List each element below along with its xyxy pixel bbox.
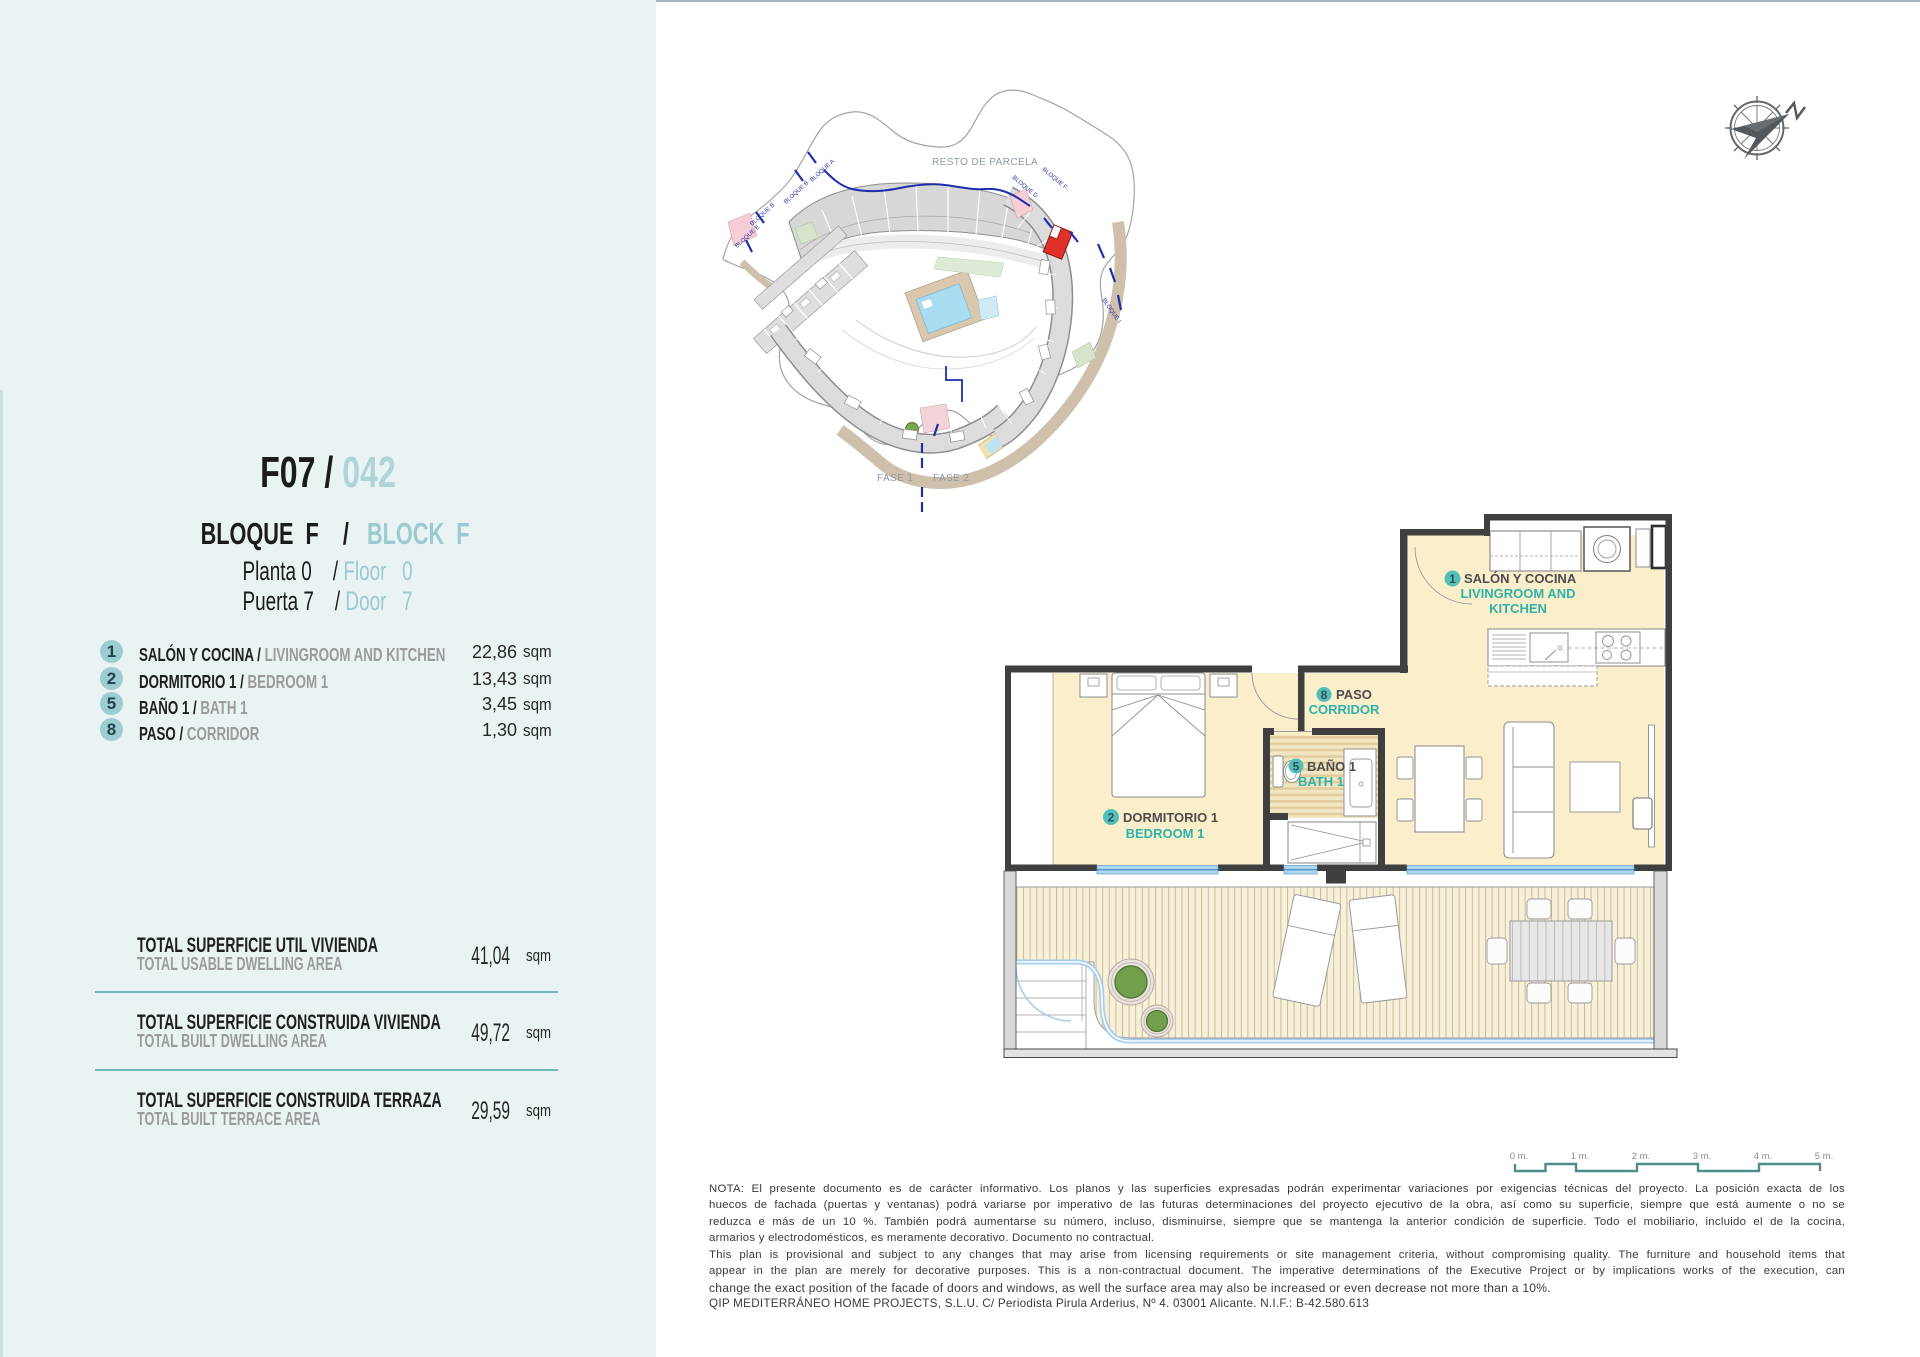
svg-text:RESTO DE PARCELA: RESTO DE PARCELA (932, 157, 1038, 168)
svg-text:DORMITORIO 1: DORMITORIO 1 (1123, 810, 1218, 825)
svg-text:SALÓN Y COCINA: SALÓN Y COCINA (1464, 571, 1577, 586)
svg-text:LIVINGROOM AND: LIVINGROOM AND (1460, 586, 1575, 601)
svg-text:FASE 1: FASE 1 (877, 473, 913, 484)
svg-text:PASO: PASO (1336, 687, 1372, 702)
svg-text:8: 8 (1321, 688, 1328, 702)
svg-text:2: 2 (1108, 811, 1115, 825)
svg-text:5: 5 (1293, 760, 1300, 774)
svg-text:BATH 1: BATH 1 (1298, 774, 1344, 789)
svg-text:4 m.: 4 m. (1754, 1151, 1772, 1162)
svg-text:KITCHEN: KITCHEN (1489, 601, 1547, 616)
svg-text:3 m.: 3 m. (1693, 1151, 1711, 1162)
svg-text:5 m.: 5 m. (1815, 1151, 1833, 1162)
svg-text:1: 1 (1449, 572, 1456, 586)
svg-text:0 m.: 0 m. (1510, 1151, 1528, 1162)
svg-text:BEDROOM 1: BEDROOM 1 (1126, 826, 1205, 841)
svg-text:CORRIDOR: CORRIDOR (1309, 702, 1380, 717)
svg-text:2 m.: 2 m. (1632, 1151, 1650, 1162)
svg-text:BAÑO 1: BAÑO 1 (1307, 759, 1356, 774)
svg-text:FASE 2: FASE 2 (933, 473, 969, 484)
svg-text:1 m.: 1 m. (1571, 1151, 1589, 1162)
